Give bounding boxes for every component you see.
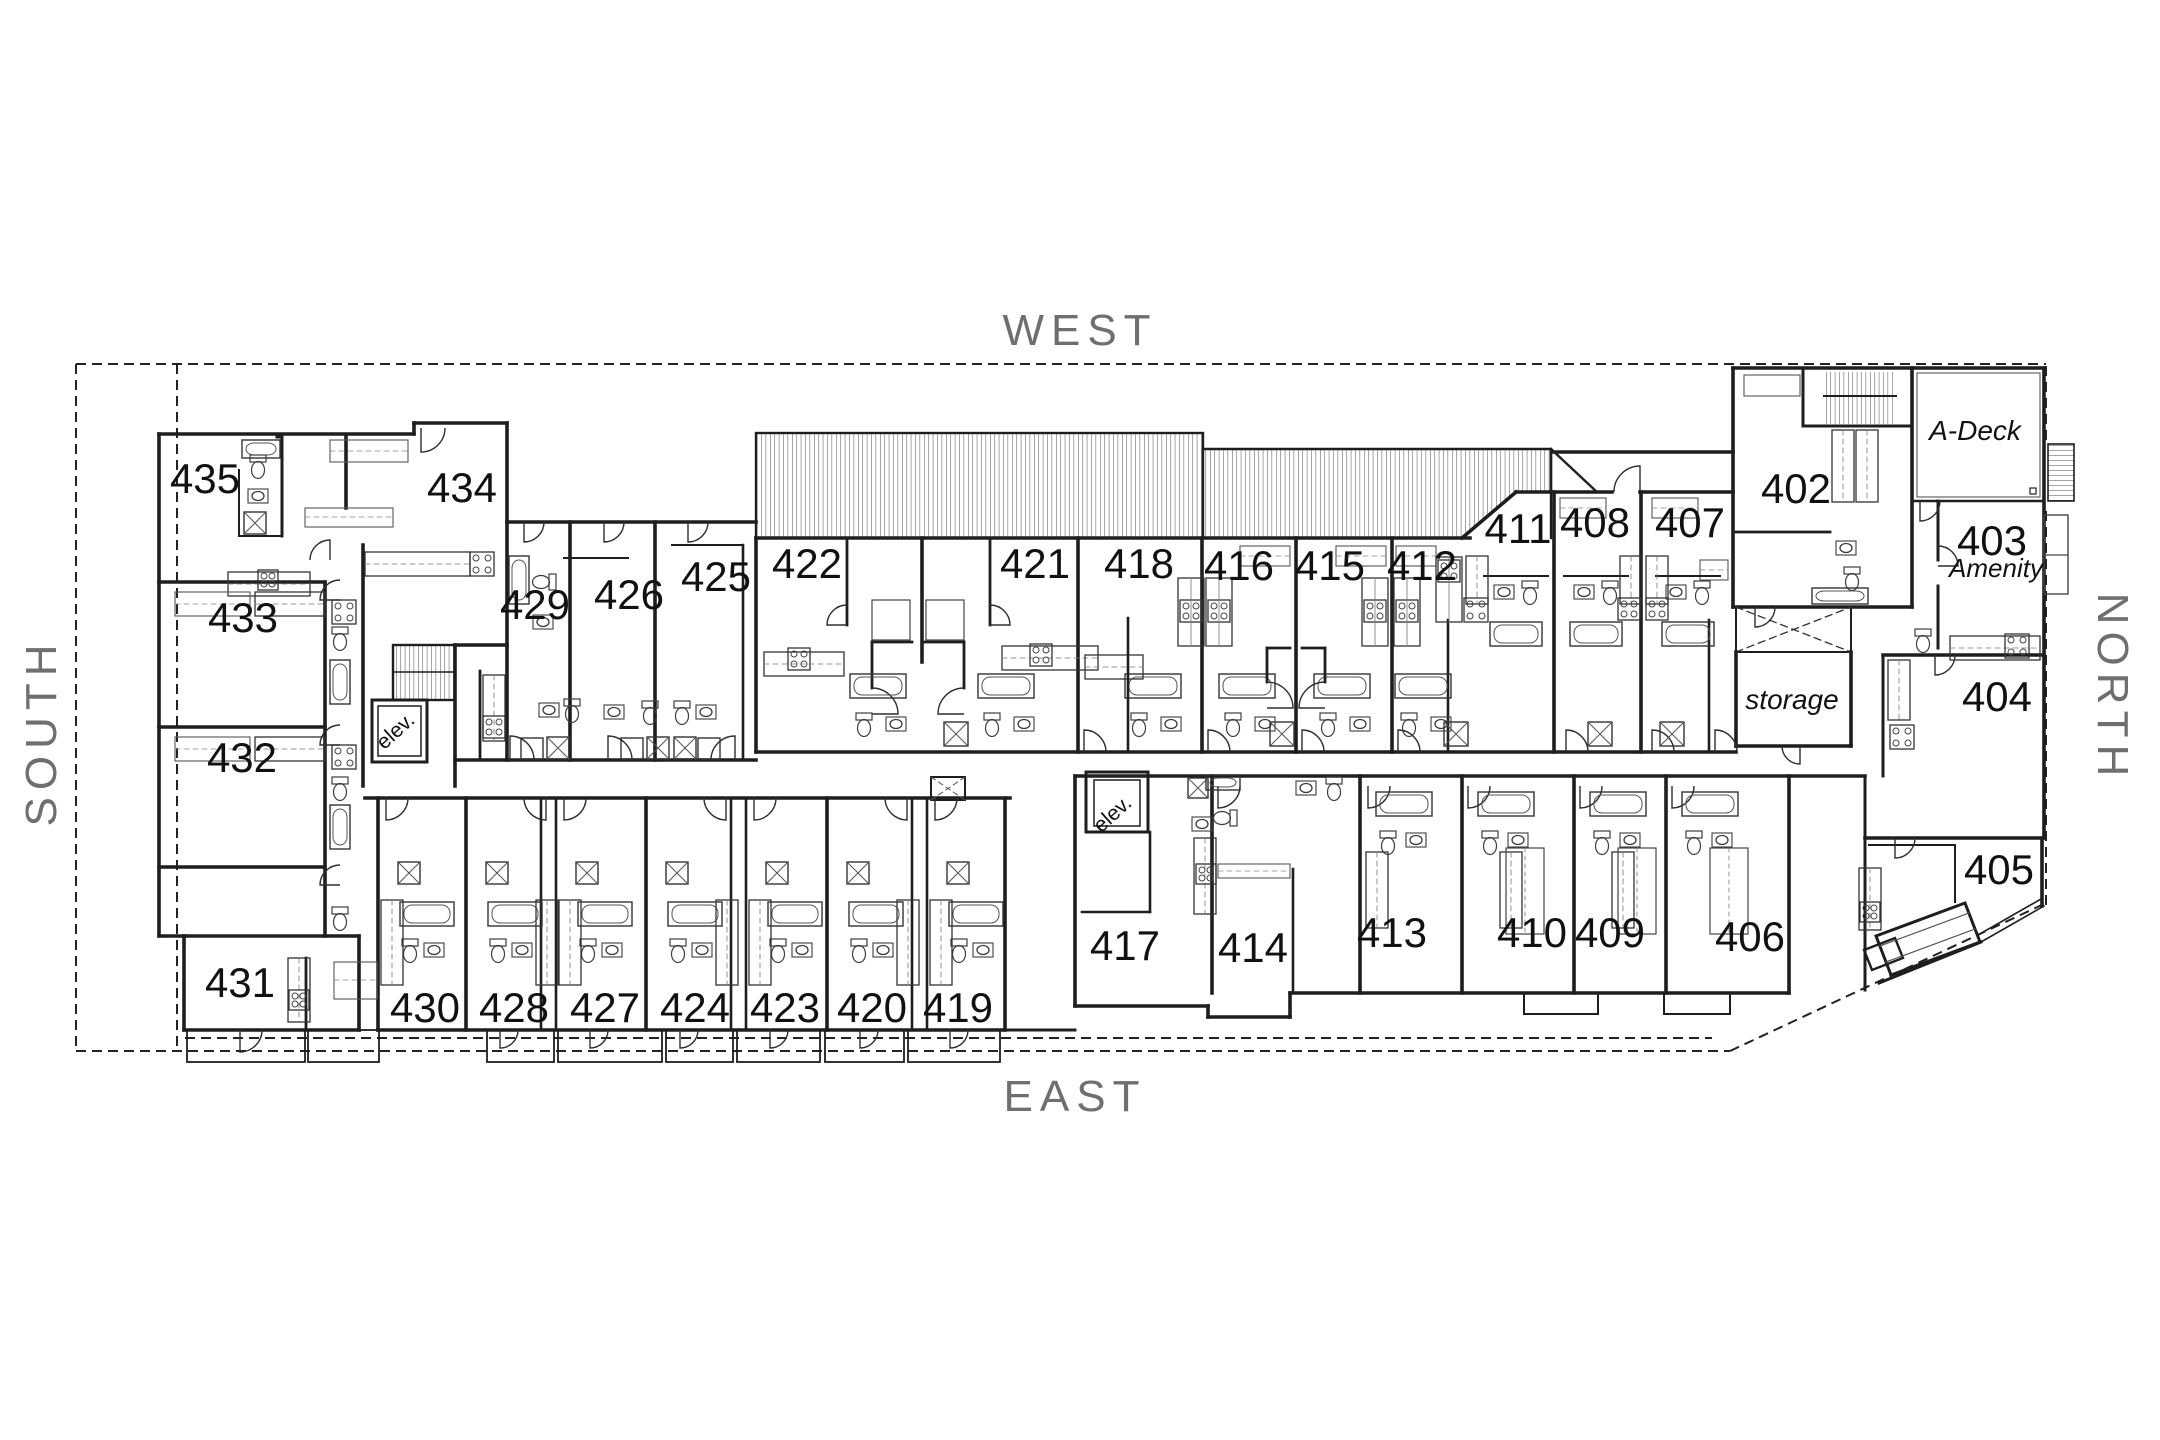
svg-text:433: 433 xyxy=(208,594,278,641)
svg-text:434: 434 xyxy=(427,464,497,511)
svg-text:430: 430 xyxy=(390,984,460,1031)
svg-text:432: 432 xyxy=(207,734,277,781)
svg-text:NORTH: NORTH xyxy=(2088,593,2137,784)
svg-text:425: 425 xyxy=(681,553,751,600)
svg-text:415: 415 xyxy=(1295,542,1365,589)
svg-text:406: 406 xyxy=(1715,913,1785,960)
svg-text:402: 402 xyxy=(1761,465,1831,512)
svg-text:420: 420 xyxy=(837,984,907,1031)
svg-text:410: 410 xyxy=(1497,909,1567,956)
svg-text:WEST: WEST xyxy=(1002,306,1157,355)
svg-text:414: 414 xyxy=(1218,924,1288,971)
svg-text:Amenity: Amenity xyxy=(1947,553,2045,583)
svg-text:422: 422 xyxy=(772,540,842,587)
svg-text:404: 404 xyxy=(1962,673,2032,720)
svg-text:SOUTH: SOUTH xyxy=(17,638,66,827)
svg-text:428: 428 xyxy=(479,984,549,1031)
svg-text:405: 405 xyxy=(1964,846,2034,893)
svg-text:426: 426 xyxy=(594,571,664,618)
svg-text:418: 418 xyxy=(1104,540,1174,587)
svg-text:storage: storage xyxy=(1745,684,1838,715)
svg-text:409: 409 xyxy=(1575,909,1645,956)
svg-text:411: 411 xyxy=(1485,505,1552,552)
svg-text:408: 408 xyxy=(1560,499,1630,546)
svg-text:431: 431 xyxy=(205,959,275,1006)
svg-text:429: 429 xyxy=(500,581,570,628)
svg-text:416: 416 xyxy=(1204,542,1274,589)
svg-text:424: 424 xyxy=(660,984,730,1031)
svg-text:413: 413 xyxy=(1357,909,1427,956)
svg-text:435: 435 xyxy=(170,455,240,502)
svg-text:A-Deck: A-Deck xyxy=(1927,415,2023,446)
svg-text:419: 419 xyxy=(923,984,993,1031)
svg-text:417: 417 xyxy=(1090,922,1160,969)
svg-text:423: 423 xyxy=(750,984,820,1031)
svg-text:421: 421 xyxy=(1000,540,1070,587)
svg-text:427: 427 xyxy=(570,984,640,1031)
svg-text:412: 412 xyxy=(1387,542,1457,589)
svg-text:EAST: EAST xyxy=(1004,1072,1147,1121)
svg-text:407: 407 xyxy=(1655,499,1725,546)
